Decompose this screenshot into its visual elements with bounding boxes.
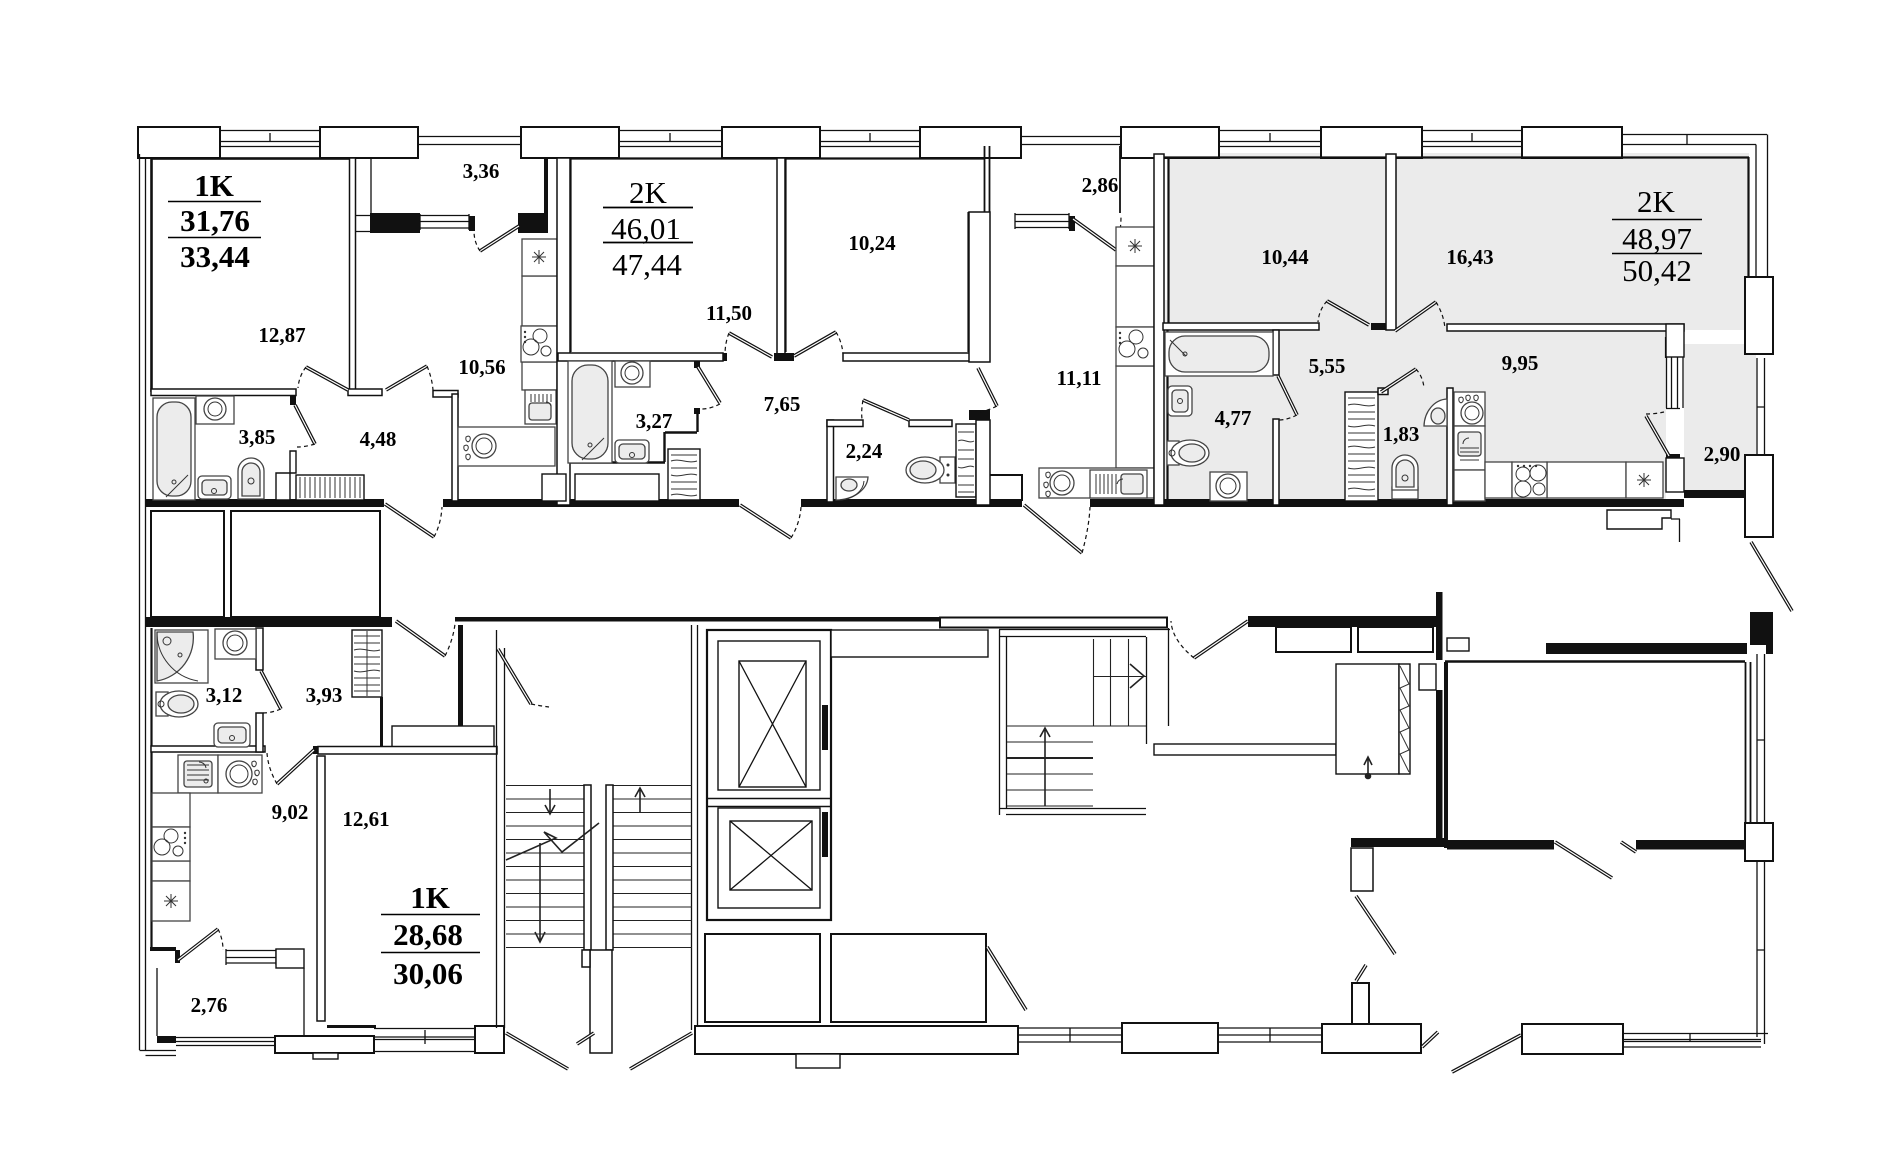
svg-text:2,76: 2,76 <box>191 993 228 1017</box>
svg-text:9,02: 9,02 <box>272 800 309 824</box>
svg-text:4,48: 4,48 <box>360 427 397 451</box>
svg-text:1K: 1K <box>410 880 450 915</box>
svg-text:3,27: 3,27 <box>636 409 673 433</box>
svg-text:12,87: 12,87 <box>258 323 305 347</box>
svg-text:5,55: 5,55 <box>1309 354 1346 378</box>
svg-text:46,01: 46,01 <box>611 211 681 246</box>
svg-text:50,42: 50,42 <box>1622 253 1692 288</box>
svg-text:33,44: 33,44 <box>180 239 250 274</box>
svg-text:47,44: 47,44 <box>612 247 682 282</box>
svg-text:3,93: 3,93 <box>306 683 343 707</box>
svg-text:2,90: 2,90 <box>1704 442 1741 466</box>
svg-text:1,83: 1,83 <box>1383 422 1420 446</box>
svg-text:3,12: 3,12 <box>206 683 243 707</box>
svg-text:48,97: 48,97 <box>1622 221 1692 256</box>
svg-text:10,56: 10,56 <box>458 355 505 379</box>
svg-text:11,11: 11,11 <box>1057 366 1102 390</box>
svg-text:2,24: 2,24 <box>846 439 883 463</box>
svg-text:30,06: 30,06 <box>393 956 463 991</box>
svg-text:2K: 2K <box>629 175 668 210</box>
svg-text:31,76: 31,76 <box>180 203 250 238</box>
svg-text:1K: 1K <box>194 168 234 203</box>
svg-text:3,85: 3,85 <box>239 425 276 449</box>
svg-text:3,36: 3,36 <box>463 159 500 183</box>
svg-text:28,68: 28,68 <box>393 917 463 952</box>
svg-text:2,86: 2,86 <box>1082 173 1119 197</box>
svg-text:10,44: 10,44 <box>1261 245 1309 269</box>
svg-text:2K: 2K <box>1637 184 1676 219</box>
svg-text:7,65: 7,65 <box>764 392 801 416</box>
svg-text:11,50: 11,50 <box>706 301 752 325</box>
svg-text:4,77: 4,77 <box>1215 406 1252 430</box>
svg-text:16,43: 16,43 <box>1446 245 1493 269</box>
svg-text:10,24: 10,24 <box>848 231 896 255</box>
svg-text:12,61: 12,61 <box>342 807 389 831</box>
svg-text:9,95: 9,95 <box>1502 351 1539 375</box>
